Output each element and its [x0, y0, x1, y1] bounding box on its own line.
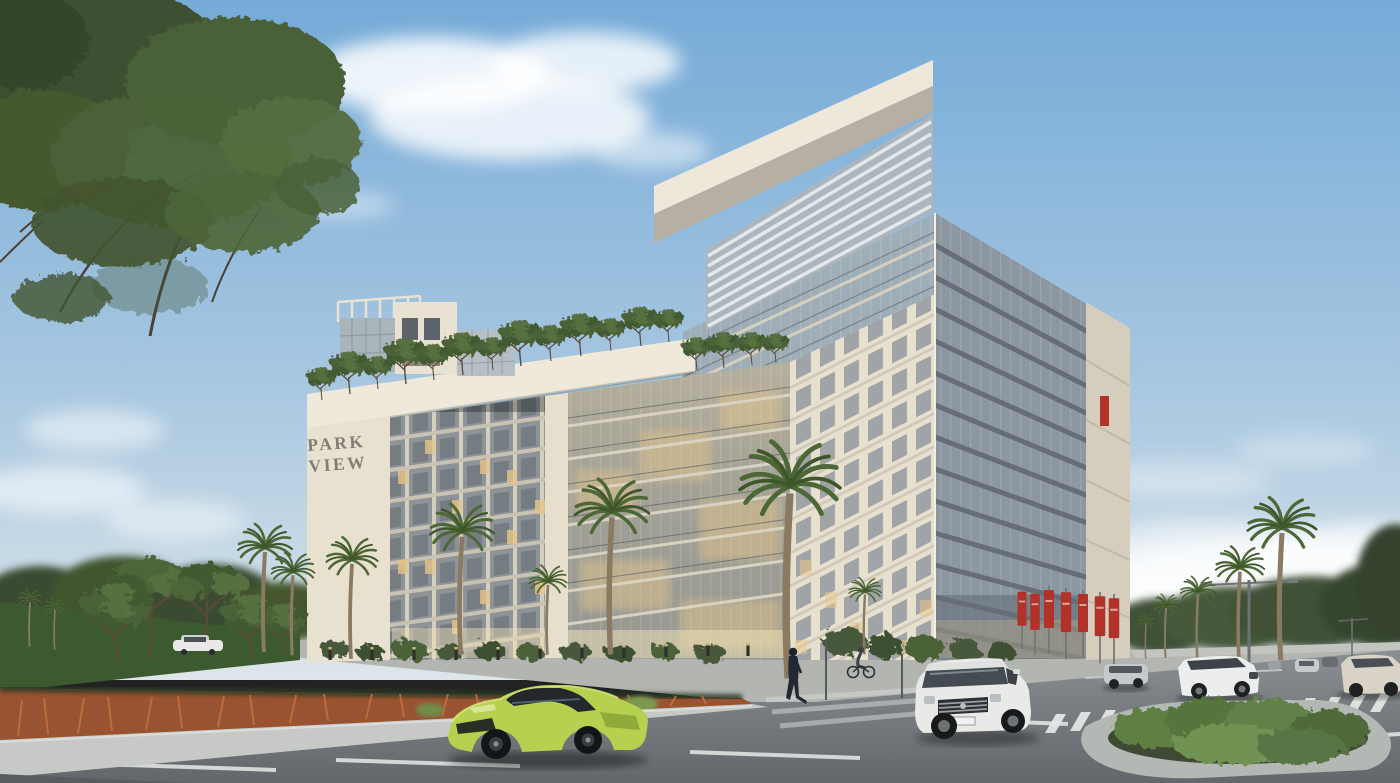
architectural-rendering: PARK VIEW — [0, 0, 1400, 783]
sign-line-1: PARK — [307, 431, 367, 455]
white-crossover — [1176, 656, 1264, 704]
tower-logo-banner — [1100, 396, 1109, 426]
sign-line-2: VIEW — [308, 452, 368, 476]
silver-suv — [1102, 664, 1150, 692]
tower-corner-pier — [1086, 302, 1130, 660]
portal-pier — [545, 393, 568, 658]
park-view-podium: PARK VIEW — [306, 296, 794, 666]
park-view-sign: PARK VIEW — [306, 431, 367, 476]
beige-car — [1336, 655, 1400, 700]
